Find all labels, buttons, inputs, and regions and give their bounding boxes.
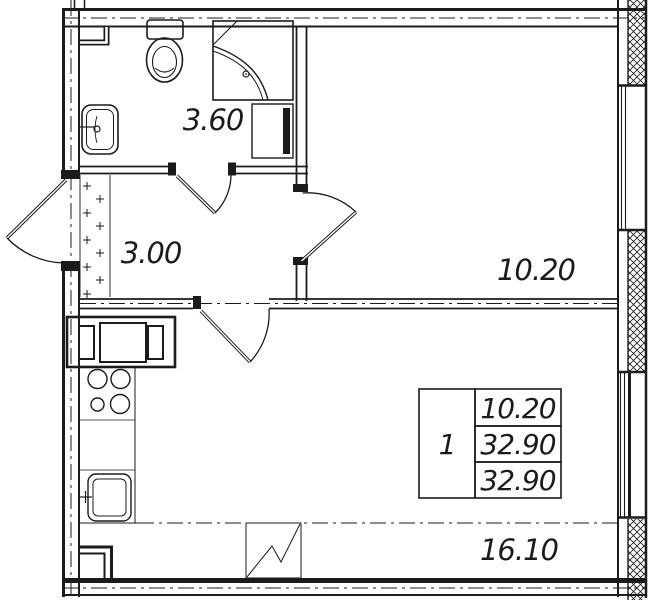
kitchen-sink (78, 474, 131, 521)
exterior-wall-right (617, 0, 647, 600)
bathroom-area-label: 3.60 (183, 103, 244, 137)
living-room-area-label: 10.20 (497, 253, 575, 287)
entrance-door (7, 180, 66, 263)
toilet (147, 20, 184, 82)
sofa (67, 317, 175, 367)
hall-area-label: 3.00 (121, 236, 182, 270)
exterior-wall-left (61, 0, 80, 600)
info-table: 1 10.20 32.90 32.90 (419, 389, 561, 498)
living-area-value: 10.20 (480, 392, 555, 425)
exterior-wall-bottom (62, 581, 647, 596)
floor-plan-drawing: 3.60 3.00 10.20 16.10 1 10.20 32.90 32.9… (0, 0, 651, 600)
total-area-with-balcony-value: 32.90 (480, 464, 555, 497)
balcony-zigzag (247, 524, 300, 577)
hall-living-wall (293, 27, 308, 301)
window-bottom (621, 373, 630, 517)
apartment-number: 1 (439, 428, 456, 461)
duct-shaft (80, 547, 112, 580)
window-top (622, 86, 626, 229)
ventilation-shaft (80, 27, 107, 43)
total-area-value: 32.90 (480, 428, 555, 461)
kitchen-living-area-label: 16.10 (480, 533, 558, 567)
floor-plan: 3.60 3.00 10.20 16.10 1 10.20 32.90 32.9… (0, 0, 651, 600)
exterior-wall-top (62, 0, 647, 27)
shower-cabin (213, 21, 293, 100)
bathroom-door (177, 175, 231, 213)
stove-burners (88, 370, 130, 414)
washbasin (80, 105, 118, 154)
living-room-door (302, 193, 357, 261)
entry-hatch-strip (80, 175, 110, 298)
washing-machine (252, 104, 293, 158)
kitchen-door (201, 309, 269, 362)
kitchen-wall (80, 296, 618, 309)
bathroom-wall (80, 163, 308, 176)
